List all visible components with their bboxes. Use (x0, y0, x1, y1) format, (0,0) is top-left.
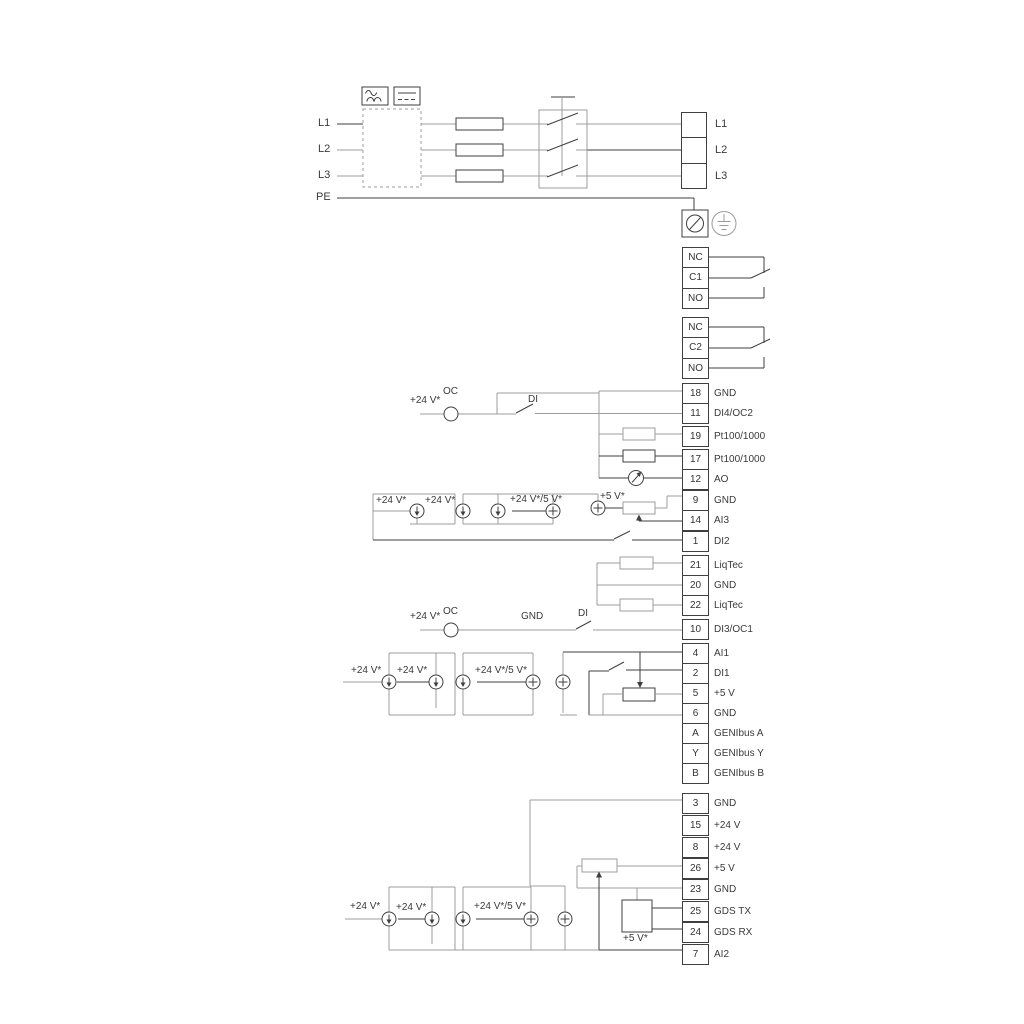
relay1-c1-cell: C1 (682, 267, 709, 289)
relay1-nc-cell: NC (682, 247, 709, 268)
relay2-nc-cell: NC (682, 317, 709, 338)
terminal-15: 15 (682, 815, 709, 836)
terminal-21-label: LiqTec (714, 555, 743, 576)
terminal-9-label: GND (714, 490, 736, 511)
terminal-6: 6 (682, 703, 709, 724)
relay2-c2-cell: C2 (682, 337, 709, 359)
terminal-5-label: +5 V (714, 683, 735, 704)
terminal-23-label: GND (714, 879, 736, 900)
mains-l1-left-label: L1 (318, 117, 330, 130)
terminal-1: 1 (682, 531, 709, 552)
terminal-10: 10 (682, 619, 709, 640)
v24-label-oc2: +24 V* (410, 395, 440, 407)
v24-5v-label-ai3: +24 V*/5 V* (510, 494, 562, 506)
v24-label-ai3-2: +24 V* (425, 495, 455, 507)
terminal-11: 11 (682, 403, 709, 424)
terminal-25-label: GDS TX (714, 901, 751, 922)
terminal-20-label: GND (714, 575, 736, 596)
terminal-7-label: AI2 (714, 944, 729, 965)
mains-terminal-l2 (681, 137, 707, 164)
terminal-a: A (682, 723, 709, 744)
terminal-18: 18 (682, 383, 709, 404)
relay2-no-cell: NO (682, 358, 709, 379)
oc-label-oc1: OC (443, 606, 458, 618)
relay1-no-cell: NO (682, 288, 709, 309)
terminal-25: 25 (682, 901, 709, 922)
terminal-9: 9 (682, 490, 709, 511)
terminal-20: 20 (682, 575, 709, 596)
terminal-14-label: AI3 (714, 510, 729, 531)
v24-label-ai1-2: +24 V* (397, 665, 427, 677)
terminal-a-label: GENIbus A (714, 723, 763, 744)
v24-label-ai2-2: +24 V* (396, 902, 426, 914)
main-switch (539, 97, 587, 188)
terminal-14: 14 (682, 510, 709, 531)
terminal-19: 19 (682, 426, 709, 447)
terminal-23: 23 (682, 879, 709, 900)
terminal-1-label: DI2 (714, 531, 730, 552)
v24-label-oc1: +24 V* (410, 611, 440, 623)
wiring-diagram-canvas (0, 0, 1024, 1024)
v24-label-ai3-1: +24 V* (376, 495, 406, 507)
terminal-12: 12 (682, 469, 709, 490)
fuses (456, 118, 503, 182)
wiring-diagram: L1 L2 L3 PE L1 L2 L3 NC C1 NO NC C2 NO 1… (0, 0, 1024, 1024)
relay2-contact (708, 327, 770, 368)
terminal-b-label: GENIbus B (714, 763, 764, 784)
terminal-17-label: Pt100/1000 (714, 449, 765, 470)
terminal-22: 22 (682, 595, 709, 616)
terminal-3: 3 (682, 793, 709, 814)
terminal-18-label: GND (714, 383, 736, 404)
mains-l2-right-label: L2 (715, 144, 727, 157)
mains-input-wiring (337, 109, 694, 210)
di-label-di3: DI (578, 608, 588, 620)
v24-label-ai1-1: +24 V* (351, 665, 381, 677)
terminal-26-label: +5 V (714, 858, 735, 879)
terminal-5: 5 (682, 683, 709, 704)
terminal-2: 2 (682, 663, 709, 684)
terminal-11-label: DI4/OC2 (714, 403, 753, 424)
v24-label-ai2-1: +24 V* (350, 901, 380, 913)
power-wiring (345, 800, 682, 950)
dc-symbol-box (394, 87, 420, 105)
earth-symbol (712, 212, 736, 236)
terminal-24-label: GDS RX (714, 922, 752, 943)
ac-symbol-box (362, 87, 388, 105)
relay1-contact (708, 257, 770, 298)
mains-l3-right-label: L3 (715, 170, 727, 183)
terminal-3-label: GND (714, 793, 736, 814)
mains-l2-left-label: L2 (318, 143, 330, 156)
liqtec-wiring (597, 557, 682, 611)
gnd-label-di3: GND (521, 611, 543, 623)
oc-label-oc2: OC (443, 386, 458, 398)
terminal-8: 8 (682, 837, 709, 858)
terminal-12-label: AO (714, 469, 728, 490)
terminal-2-label: DI1 (714, 663, 730, 684)
v24-5v-label-ai2: +24 V*/5 V* (474, 901, 526, 913)
terminal-17: 17 (682, 449, 709, 470)
terminal-4-label: AI1 (714, 643, 729, 664)
terminal-y-label: GENIbus Y (714, 743, 764, 764)
terminal-21: 21 (682, 555, 709, 576)
terminal-22-label: LiqTec (714, 595, 743, 616)
terminal-15-label: +24 V (714, 815, 740, 836)
di-label-di4: DI (528, 394, 538, 406)
v24-5v-label-ai1: +24 V*/5 V* (475, 665, 527, 677)
v5-label-gds: +5 V* (623, 933, 648, 945)
terminal-24: 24 (682, 922, 709, 943)
terminal-19-label: Pt100/1000 (714, 426, 765, 447)
mains-l3-left-label: L3 (318, 169, 330, 182)
mains-terminal-l1 (681, 112, 707, 138)
terminal-b: B (682, 763, 709, 784)
mains-terminal-l3 (681, 163, 707, 189)
terminal-y: Y (682, 743, 709, 764)
di3-wiring (420, 621, 682, 630)
terminal-26: 26 (682, 858, 709, 879)
terminal-4: 4 (682, 643, 709, 664)
v5-label-ai3: +5 V* (600, 491, 625, 503)
terminal-7: 7 (682, 944, 709, 965)
terminal-8-label: +24 V (714, 837, 740, 858)
ground-terminal (682, 210, 708, 237)
terminal-10-label: DI3/OC1 (714, 619, 753, 640)
mains-l1-right-label: L1 (715, 118, 727, 131)
mains-pe-label: PE (316, 191, 331, 204)
terminal-6-label: GND (714, 703, 736, 724)
